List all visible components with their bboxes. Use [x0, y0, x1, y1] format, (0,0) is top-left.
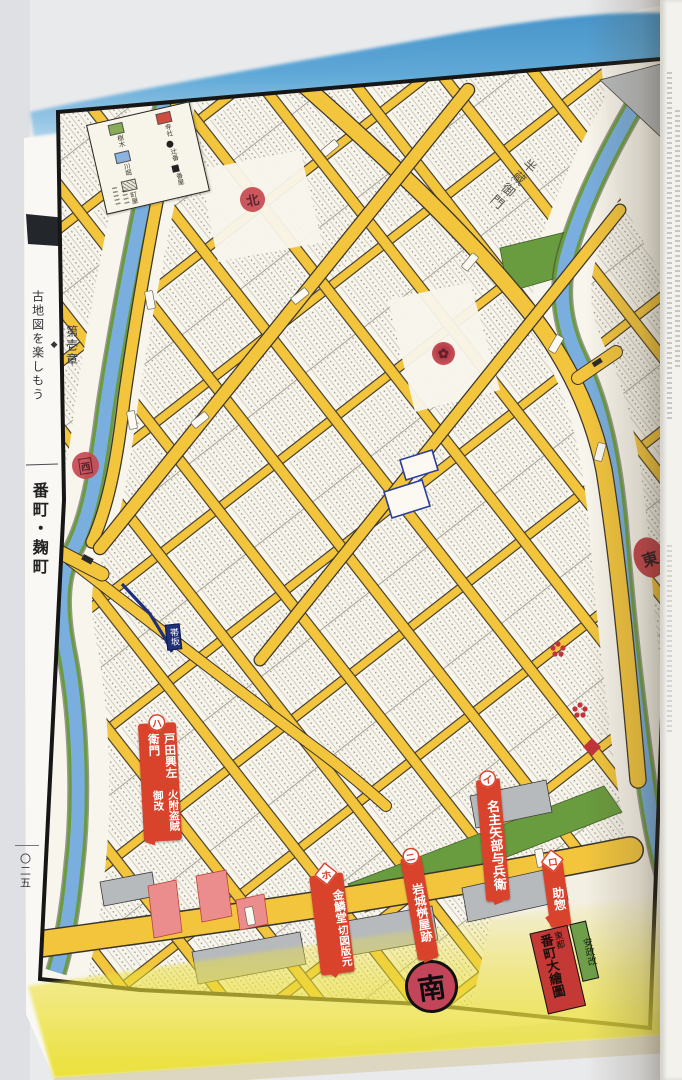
- marker-toda-yozaemon: ハ 火附盗賊御改 戸田興左衛門: [138, 722, 182, 842]
- book-page-photo: 第壱章 ◆ 古地図を楽しもう 番町・麹町 〇二五 寺社 辻番 番屋 樹木: [0, 0, 682, 1080]
- marker-tail: [328, 970, 344, 986]
- legend-fine-print: [112, 187, 121, 208]
- page-number: 〇二五: [18, 853, 30, 889]
- facing-page-text: [667, 72, 672, 422]
- diamond-icon: ◆: [50, 340, 59, 352]
- chapter-title: 古地図を楽しもう: [31, 290, 44, 402]
- legend-item: 辻番: [162, 139, 181, 163]
- slope-label: 帯坂: [165, 623, 183, 650]
- marker-badge-ha: ハ: [148, 714, 166, 732]
- legend-column-right: 寺社 辻番 番屋: [155, 111, 188, 194]
- legend-item: 樹木: [108, 122, 128, 150]
- chapter-heading: 第壱章 ◆ 古地図を楽しもう: [31, 238, 78, 453]
- legend-item: 番屋: [167, 163, 186, 187]
- marker-tail: [537, 910, 553, 926]
- marker-badge-i: イ: [478, 770, 496, 788]
- chapter-number: 第壱章: [65, 325, 78, 367]
- page-number-tick: [15, 845, 39, 846]
- facing-page-text: [675, 110, 680, 370]
- legend-item: 寺社: [155, 111, 175, 139]
- section-title: 番町・麹町: [29, 482, 46, 622]
- legend-item: 川堀: [114, 150, 134, 178]
- facing-page-text: [667, 545, 672, 735]
- crest-seal-icon: ✿: [432, 342, 455, 365]
